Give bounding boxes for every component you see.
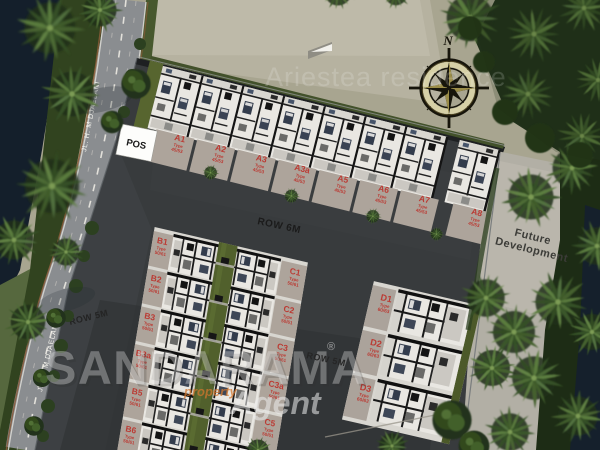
svg-text:Ariestea residence: Ariestea residence: [265, 62, 507, 92]
svg-text:N: N: [442, 33, 453, 48]
svg-text:Agent: Agent: [229, 385, 322, 421]
svg-text:®: ®: [327, 341, 335, 353]
